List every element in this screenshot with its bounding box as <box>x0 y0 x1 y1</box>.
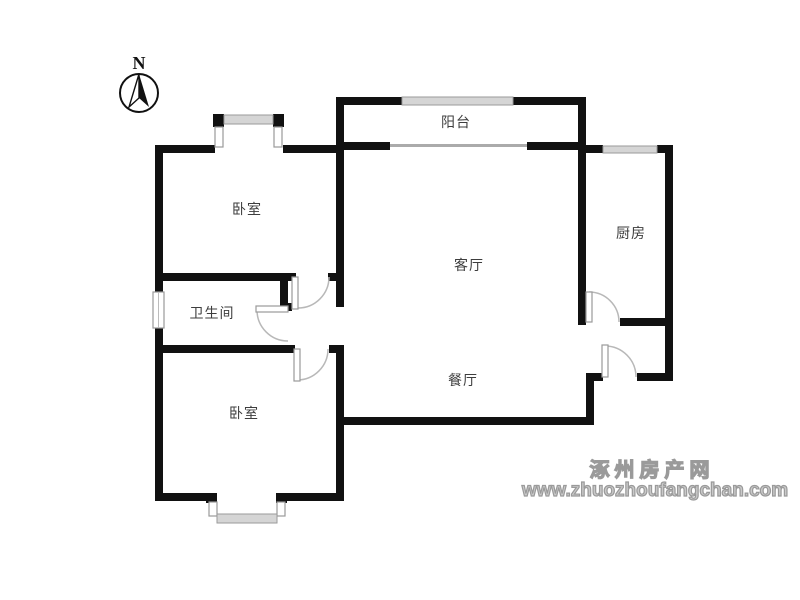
wall <box>637 373 673 381</box>
wall <box>273 114 284 127</box>
door-panel-kitchen <box>586 292 592 322</box>
door-panel-bathroom <box>256 306 288 312</box>
door-arc-kitchen <box>589 292 619 322</box>
window <box>215 127 223 147</box>
wall <box>336 345 344 501</box>
window <box>217 514 277 523</box>
walls <box>155 97 673 503</box>
door-arc-bathroom <box>257 310 288 341</box>
room-label-living-room: 客厅 <box>454 255 484 275</box>
window <box>277 502 285 516</box>
door-arc-bedroom-top <box>298 277 329 308</box>
floorplan-canvas: N <box>0 0 800 600</box>
window <box>209 502 217 516</box>
watermark-site-name: 涿州房产网 <box>590 454 715 483</box>
compass: N <box>120 53 158 112</box>
wall <box>283 145 344 153</box>
watermark-site-url: www.zhuozhoufangchan.com <box>522 480 788 502</box>
wall <box>155 345 295 353</box>
door-panel-bedroom-bottom <box>294 349 300 381</box>
wall <box>155 493 210 501</box>
wall <box>513 97 586 105</box>
balcony-slider <box>390 144 527 147</box>
wall <box>344 142 390 150</box>
room-label-kitchen: 厨房 <box>616 223 646 243</box>
compass-needle-east <box>139 74 149 107</box>
wall <box>287 493 344 501</box>
wall <box>328 273 344 281</box>
room-label-bedroom-bottom: 卧室 <box>229 403 259 423</box>
door-panel-entrance <box>602 345 608 377</box>
room-label-bedroom-top: 卧室 <box>232 199 262 219</box>
window <box>402 97 513 105</box>
compass-needle-west <box>129 74 139 107</box>
wall <box>336 145 344 307</box>
wall <box>586 145 603 153</box>
room-label-bathroom: 卫生间 <box>190 303 235 323</box>
wall <box>155 273 280 281</box>
room-label-dining-room: 餐厅 <box>448 370 478 390</box>
window <box>603 146 657 153</box>
wall <box>155 145 163 292</box>
wall <box>336 97 402 105</box>
wall <box>620 318 673 326</box>
room-label-balcony: 阳台 <box>441 112 471 132</box>
wall <box>336 417 594 425</box>
floorplan-page: { "compass": { "label": "N" }, "rooms": … <box>0 0 800 600</box>
wall <box>578 97 586 325</box>
door-arc-entrance <box>605 346 636 377</box>
wall <box>213 114 224 127</box>
door-panel-bedroom-top <box>292 277 298 309</box>
wall <box>155 145 215 153</box>
window <box>274 127 282 147</box>
compass-north-label: N <box>133 53 146 73</box>
wall <box>155 328 163 501</box>
window <box>224 115 273 124</box>
wall <box>665 147 673 381</box>
wall <box>527 142 578 150</box>
door-arc-bedroom-bottom <box>297 349 328 380</box>
